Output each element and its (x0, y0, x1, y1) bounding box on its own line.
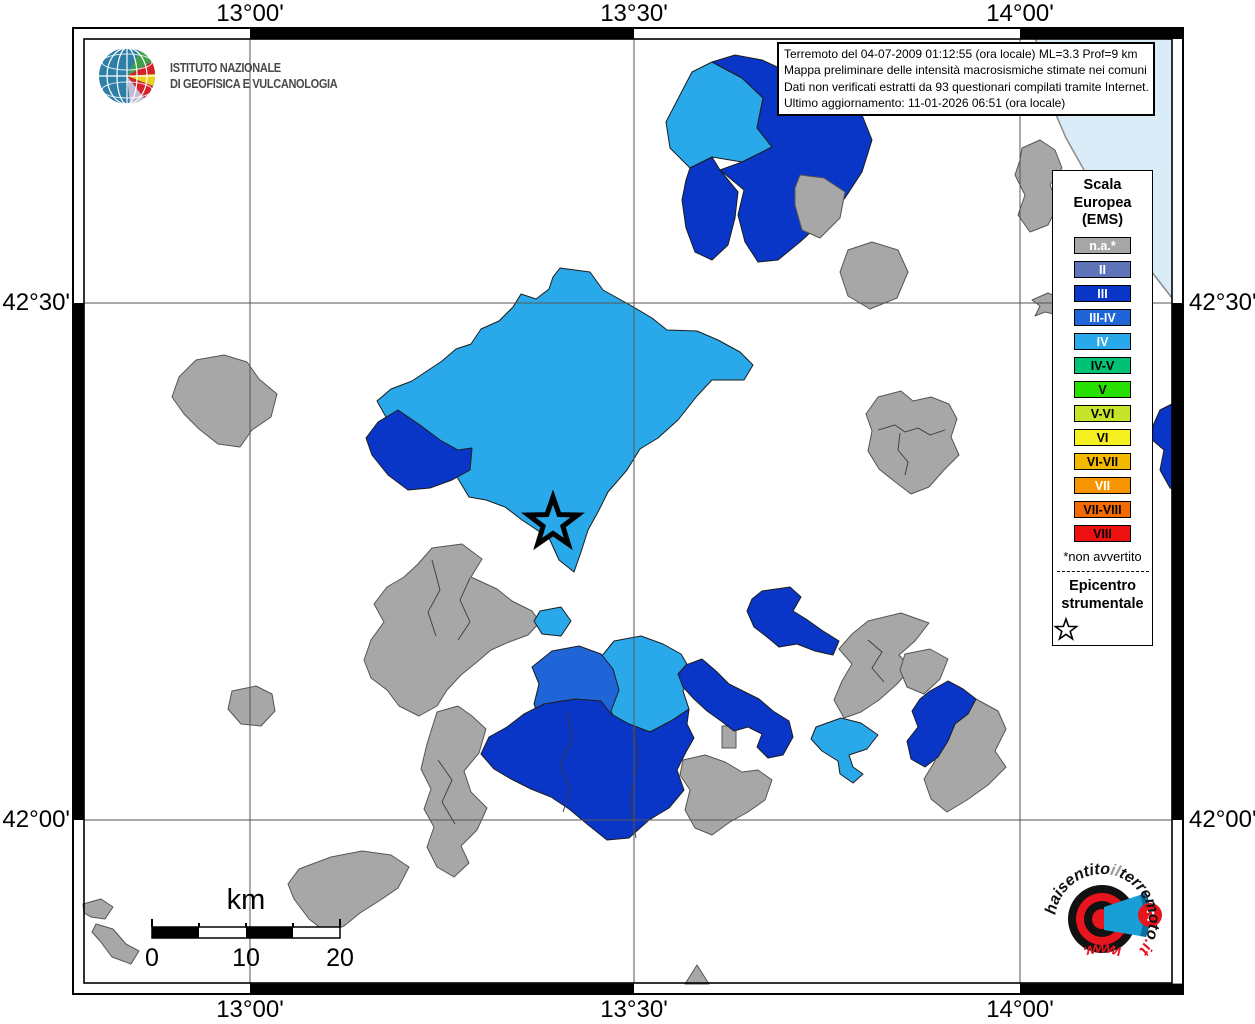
info-line-data: Dati non verificati estratti da 93 quest… (784, 79, 1149, 95)
legend-swatch-iii-iv: III-IV (1074, 309, 1131, 326)
axis-label-bottom-14-00: 14°00' (950, 996, 1090, 1024)
watermark-bottom-text: www. (1081, 940, 1124, 961)
legend-epicenter-line2: strumentale (1053, 595, 1152, 613)
legend-footnote: *non avvertito (1053, 549, 1152, 564)
municipality-IV (811, 718, 878, 783)
municipality-na (685, 965, 709, 984)
scale-bar-unit: km (206, 884, 286, 917)
legend-title-line1: Scala (1053, 177, 1152, 195)
axis-label-top-14-00: 14°00' (950, 0, 1090, 28)
axis-label-left-42-00: 42°00' (0, 806, 70, 834)
legend-epicenter-star-icon (1053, 616, 1079, 642)
municipality-na (228, 686, 275, 726)
axis-label-top-13-30: 13°30' (564, 0, 704, 28)
frame-band-segment (1172, 303, 1182, 820)
ingv-globe-icon (96, 44, 160, 108)
legend-swatch-vi-vii: VI-VII (1074, 453, 1131, 470)
municipality-III (747, 587, 839, 655)
municipality-na (364, 544, 540, 716)
municipality-na (288, 851, 409, 933)
frame-band-segment (250, 29, 634, 39)
municipality-IV (534, 607, 571, 636)
scale-bar-label-20: 20 (310, 944, 370, 973)
ingv-name-line2: DI GEOFISICA E VULCANOLOGIA (170, 76, 337, 92)
info-line-event: Terremoto del 04-07-2009 01:12:55 (ora l… (784, 46, 1149, 62)
legend-swatch-vi: VI (1074, 429, 1131, 446)
legend-items: n.a.*IIIIIIII-IVIVIV-VVV-VIVIVI-VIIVIIVI… (1053, 237, 1152, 542)
legend-title-line2: Europea (1053, 195, 1152, 213)
legend-swatch-v: V (1074, 381, 1131, 398)
legend-swatch-iv-v: IV-V (1074, 357, 1131, 374)
legend-swatch-ii: II (1074, 261, 1131, 278)
legend-swatch-vii-viii: VII-VIII (1074, 501, 1131, 518)
ingv-logo: ISTITUTO NAZIONALE DI GEOFISICA E VULCAN… (96, 44, 360, 108)
legend-swatch-n-a-: n.a.* (1074, 237, 1131, 254)
axis-label-left-42-30: 42°30' (0, 289, 70, 317)
municipality-na (421, 706, 487, 877)
legend-swatch-iv: IV (1074, 333, 1131, 350)
axis-label-bottom-13-30: 13°30' (564, 996, 704, 1024)
municipality-na (680, 755, 772, 835)
axis-label-bottom-13-00: 13°00' (180, 996, 320, 1024)
info-line-map: Mappa preliminare delle intensità macros… (784, 62, 1149, 78)
legend: Scala Europea (EMS) n.a.*IIIIIIII-IVIVIV… (1052, 170, 1153, 646)
scale-bar-segment (152, 927, 199, 938)
info-box: Terremoto del 04-07-2009 01:12:55 (ora l… (777, 42, 1155, 116)
scale-bar-label-0: 0 (122, 944, 182, 973)
frame-band-segment (74, 303, 84, 820)
legend-divider (1057, 571, 1149, 572)
frame-band-segment (1020, 29, 1182, 39)
municipality-na (83, 899, 113, 919)
seismic-intensity-map-page: 13°00' 13°30' 14°00' 13°00' 13°30' 14°00… (0, 0, 1255, 1024)
municipality-na (866, 391, 959, 494)
municipality-na (172, 355, 277, 447)
frame-band-segment (250, 984, 634, 994)
axis-label-right-42-00: 42°00' (1189, 806, 1255, 834)
ingv-name-line1: ISTITUTO NAZIONALE (170, 60, 337, 76)
scale-bar-segment (246, 927, 293, 938)
municipality-na (840, 242, 908, 309)
info-line-updated: Ultimo aggiornamento: 11-01-2026 06:51 (… (784, 95, 1149, 111)
scale-bar-label-10: 10 (216, 944, 276, 973)
axis-label-top-13-00: 13°00' (180, 0, 320, 28)
legend-swatch-vii: VII (1074, 477, 1131, 494)
legend-swatch-iii: III (1074, 285, 1131, 302)
legend-title-line3: (EMS) (1053, 212, 1152, 230)
legend-epicenter-line1: Epicentro (1053, 577, 1152, 595)
map-frame-inner (84, 39, 1172, 983)
legend-swatch-viii: VIII (1074, 525, 1131, 542)
haisentito-logo: ? haisentitoilterremoto.it www. (1034, 855, 1170, 991)
legend-swatch-v-vi: V-VI (1074, 405, 1131, 422)
axis-label-right-42-30: 42°30' (1189, 289, 1255, 317)
